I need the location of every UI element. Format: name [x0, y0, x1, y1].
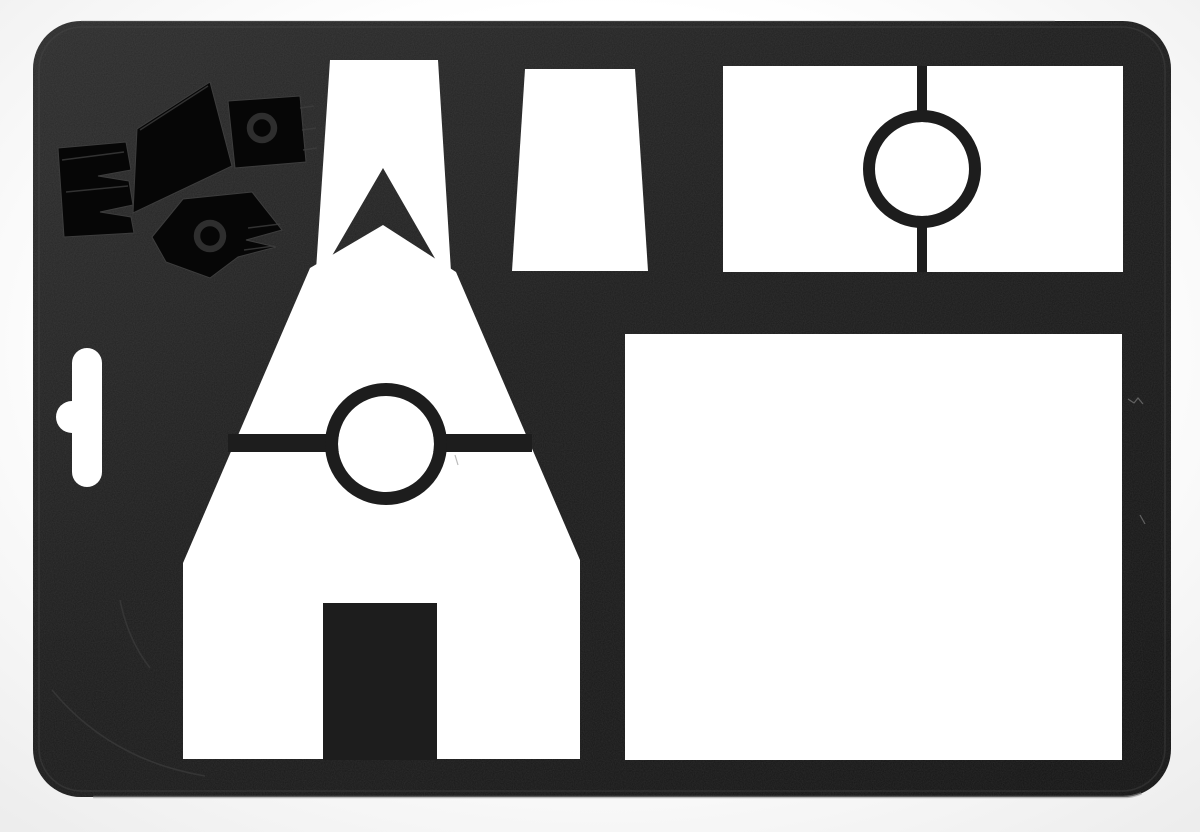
house-door-tab: [323, 603, 437, 760]
logo-top-right-piece: [228, 96, 306, 168]
chimney-cutout: [512, 69, 648, 271]
hang-slot-side-notch: [56, 401, 88, 433]
square-cutout: [625, 334, 1122, 760]
stencil-photo: [0, 0, 1200, 832]
window-circle-opening: [875, 122, 969, 216]
photo-stage: [0, 0, 1200, 832]
house-circle-window-opening: [338, 396, 434, 492]
